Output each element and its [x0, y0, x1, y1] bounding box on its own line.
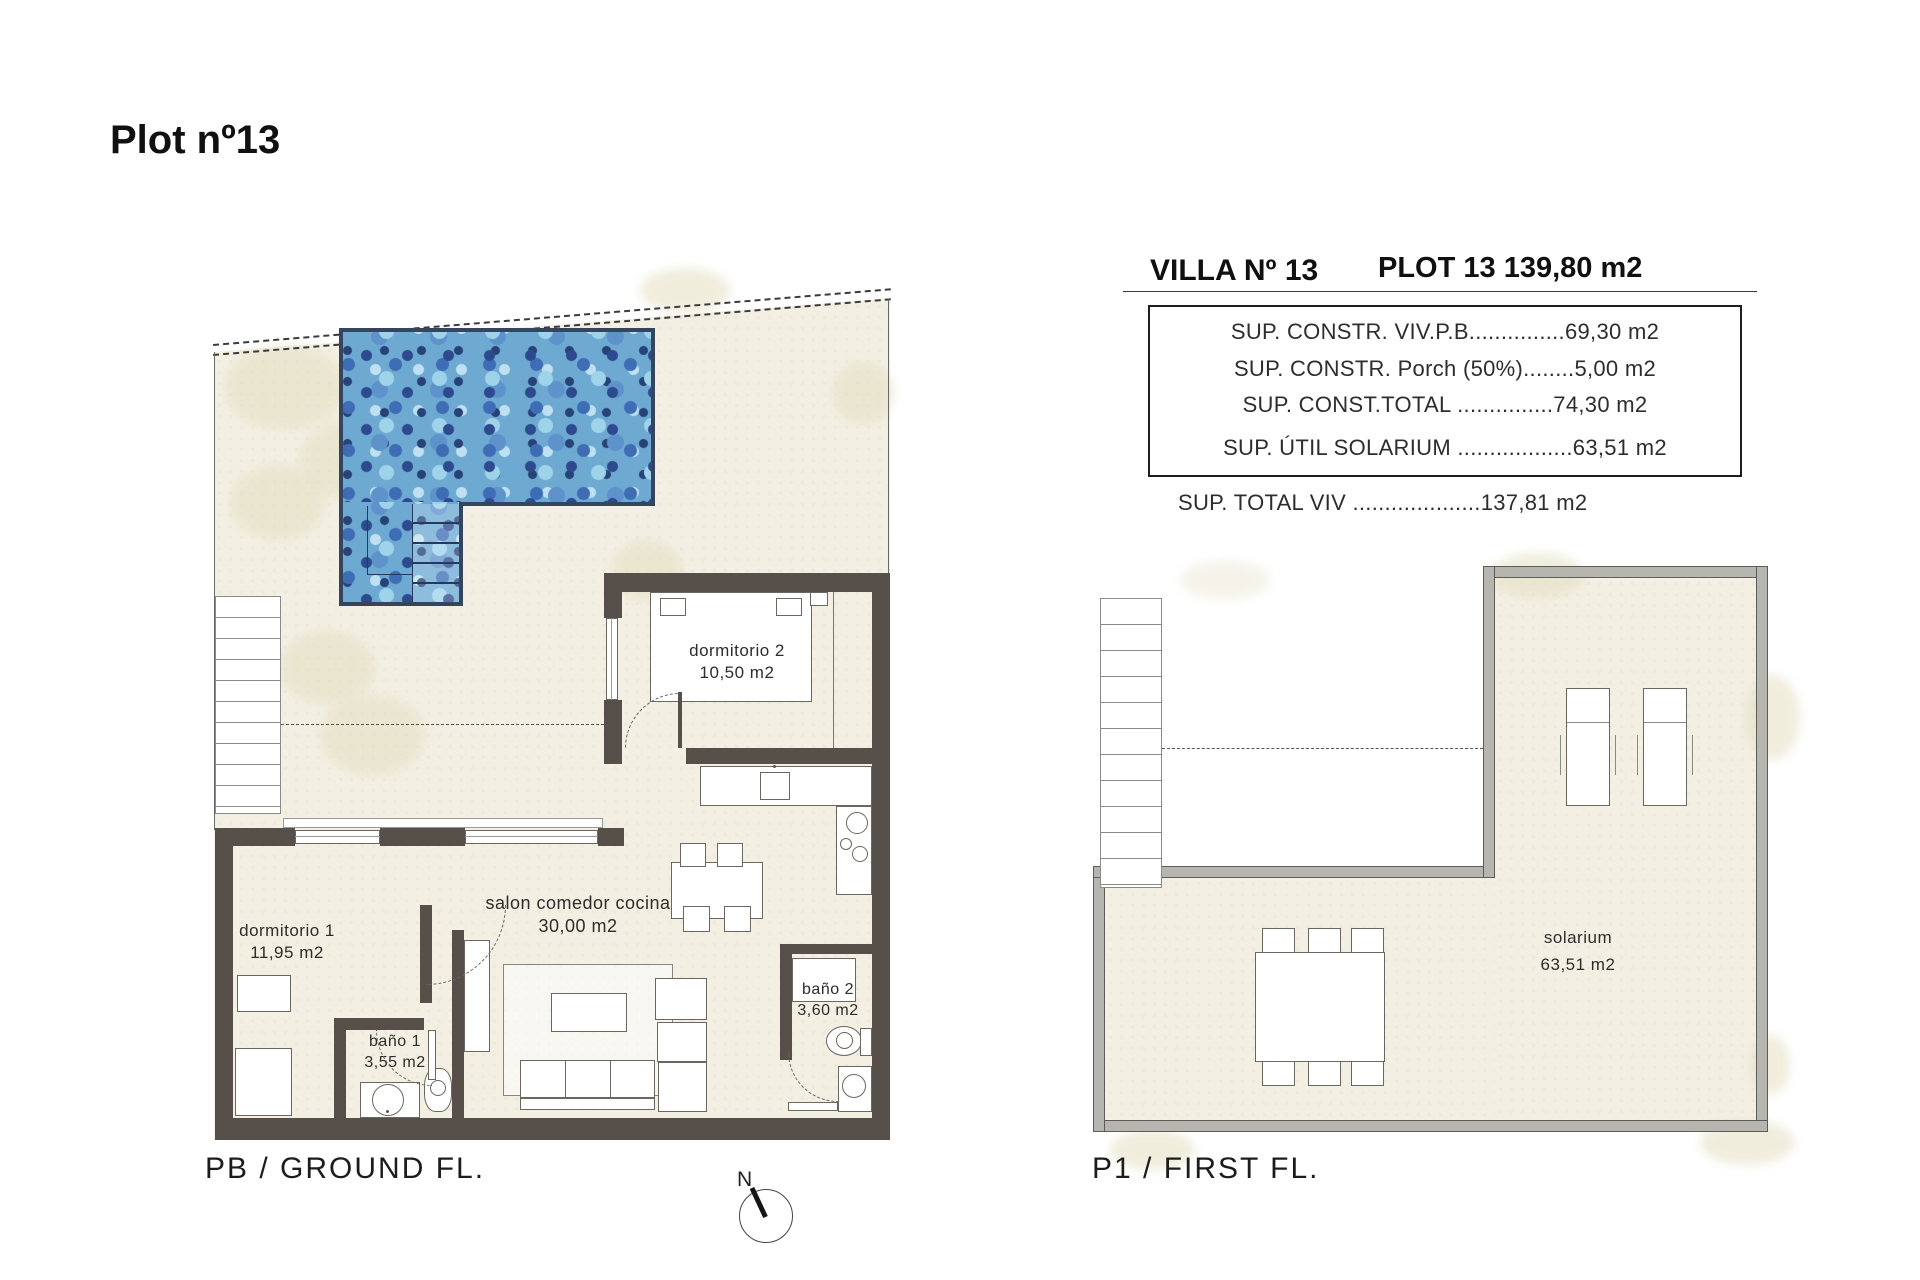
heading-underline — [1123, 291, 1757, 292]
sun-lounger — [1566, 688, 1610, 806]
bed-dorm1 — [235, 1048, 292, 1116]
window-sill — [283, 818, 603, 828]
sofa-seats — [520, 1060, 655, 1098]
lounger-headrest-line — [1567, 722, 1609, 723]
north-label: N — [737, 1168, 759, 1192]
armchair — [657, 1022, 707, 1062]
hob-burner — [840, 838, 852, 850]
pillow — [776, 598, 802, 616]
side-unit — [658, 1062, 707, 1112]
hob-burner — [852, 846, 868, 862]
pool-main — [339, 328, 655, 506]
dining-chair — [683, 906, 710, 932]
areas-row: SUP. CONSTR. Porch (50%)........5,00 m2 — [1150, 356, 1740, 382]
villa-heading: VILLA Nº 13 — [1150, 254, 1318, 288]
room-name: baño 2 — [778, 980, 878, 1001]
lounger-armrest — [1560, 735, 1561, 775]
room-area: 63,51 m2 — [1518, 951, 1638, 978]
faucet-dot — [773, 765, 776, 768]
room-label-bano2: baño 2 3,60 m2 — [778, 980, 878, 1022]
first-floor-dashed-line — [1162, 748, 1483, 749]
wall-bano2-top — [780, 944, 872, 954]
tree-blob — [1180, 560, 1270, 600]
window-facade-1 — [295, 830, 380, 844]
tree-blob — [225, 345, 345, 430]
closet-box-dorm2 — [810, 592, 828, 606]
plot-heading: PLOT 13 139,80 m2 — [1378, 252, 1642, 285]
toilet-bowl — [836, 1032, 853, 1049]
areas-row: SUP. CONSTR. VIV.P.B...............69,30… — [1150, 319, 1740, 345]
room-area: 30,00 m2 — [478, 915, 678, 938]
wall-facade-pillar — [598, 828, 624, 846]
lounger-armrest — [1692, 735, 1693, 775]
wall-dorm2-top — [604, 573, 890, 592]
tree-blob — [832, 362, 894, 424]
areas-total: SUP. TOTAL VIV ....................137,8… — [1178, 490, 1587, 516]
window-glazing-line — [465, 836, 598, 837]
solarium-floor-right — [1495, 578, 1756, 1120]
wall-facade-segment — [380, 828, 465, 846]
dining-chair — [717, 843, 743, 867]
parapet-bottom — [1093, 1120, 1768, 1132]
lounger-headrest-line — [1644, 722, 1686, 723]
toilet-tank — [860, 1028, 872, 1056]
closet-line-dorm2 — [833, 592, 834, 748]
toilet-bowl — [430, 1080, 446, 1096]
floorplan-sheet: Plot nº13 — [0, 0, 1920, 1280]
first-floor-stairs — [1100, 598, 1162, 888]
kitchen-sink — [760, 772, 790, 800]
room-name: salon comedor cocina — [478, 892, 678, 915]
coffee-table — [551, 993, 627, 1032]
ground-floor-caption: PB / GROUND FL. — [205, 1152, 485, 1186]
armchair — [655, 978, 707, 1020]
sofa-back — [520, 1098, 655, 1110]
garden-dashed-line — [281, 724, 604, 725]
room-label-dormitorio2: dormitorio 2 10,50 m2 — [662, 640, 812, 684]
tree-blob — [230, 465, 325, 540]
pool-edge-line — [367, 506, 368, 574]
parapet-right — [1756, 566, 1768, 1132]
dining-chair — [724, 906, 751, 932]
pillow — [660, 598, 686, 616]
drain-dot — [386, 1110, 389, 1113]
areas-table: SUP. CONSTR. VIV.P.B...............69,30… — [1148, 305, 1742, 477]
wall-dorm2-left-upper — [604, 592, 622, 618]
window-dorm2 — [606, 618, 618, 700]
parapet-left-lower — [1093, 866, 1105, 1132]
wall-dorm2-bottom — [686, 748, 872, 764]
lounger-armrest — [1637, 735, 1638, 775]
parapet-left-upper — [1483, 566, 1495, 878]
tree-blob — [280, 630, 375, 705]
room-name: solarium — [1518, 924, 1638, 951]
garden-stairs — [215, 596, 281, 814]
room-name: dormitorio 2 — [662, 640, 812, 662]
wall-bano1-top — [334, 1018, 424, 1030]
shower-drain — [842, 1074, 866, 1098]
outdoor-table — [1255, 952, 1385, 1062]
room-label-salon: salon comedor cocina 30,00 m2 — [478, 892, 678, 939]
lounger-armrest — [1615, 735, 1616, 775]
tree-blob — [1745, 675, 1800, 760]
room-area: 3,60 m2 — [778, 1001, 878, 1022]
plot-boundary-right-line — [888, 299, 889, 575]
wall-dorm2-left-lower — [604, 700, 622, 764]
wall-facade-segment — [215, 828, 295, 846]
sun-lounger — [1643, 688, 1687, 806]
dining-chair — [680, 843, 706, 867]
window-glazing-line — [611, 618, 612, 700]
closet-dorm1 — [237, 975, 291, 1012]
wall-bottom-outer — [215, 1118, 890, 1140]
pool-steps — [412, 504, 459, 602]
wall-left-outer — [215, 846, 233, 1140]
first-floor-caption: P1 / FIRST FL. — [1092, 1152, 1320, 1186]
window-glazing-line — [295, 836, 380, 837]
parapet-top — [1483, 566, 1768, 578]
areas-row: SUP. CONST.TOTAL ...............74,30 m2 — [1150, 392, 1740, 418]
room-area: 11,95 m2 — [212, 942, 362, 964]
room-label-dormitorio1: dormitorio 1 11,95 m2 — [212, 920, 362, 964]
room-name: dormitorio 1 — [212, 920, 362, 942]
pool-edge-line — [367, 574, 412, 575]
room-area: 10,50 m2 — [662, 662, 812, 684]
hob-burner — [846, 812, 868, 834]
tree-blob — [320, 695, 425, 775]
wall-right-outer — [872, 592, 890, 1140]
page-title: Plot nº13 — [110, 118, 280, 163]
window-facade-2 — [465, 830, 598, 844]
room-label-solarium: solarium 63,51 m2 — [1518, 924, 1638, 978]
areas-row: SUP. ÚTIL SOLARIUM ..................63,… — [1150, 435, 1740, 461]
door-leaf-bano2 — [788, 1102, 838, 1111]
